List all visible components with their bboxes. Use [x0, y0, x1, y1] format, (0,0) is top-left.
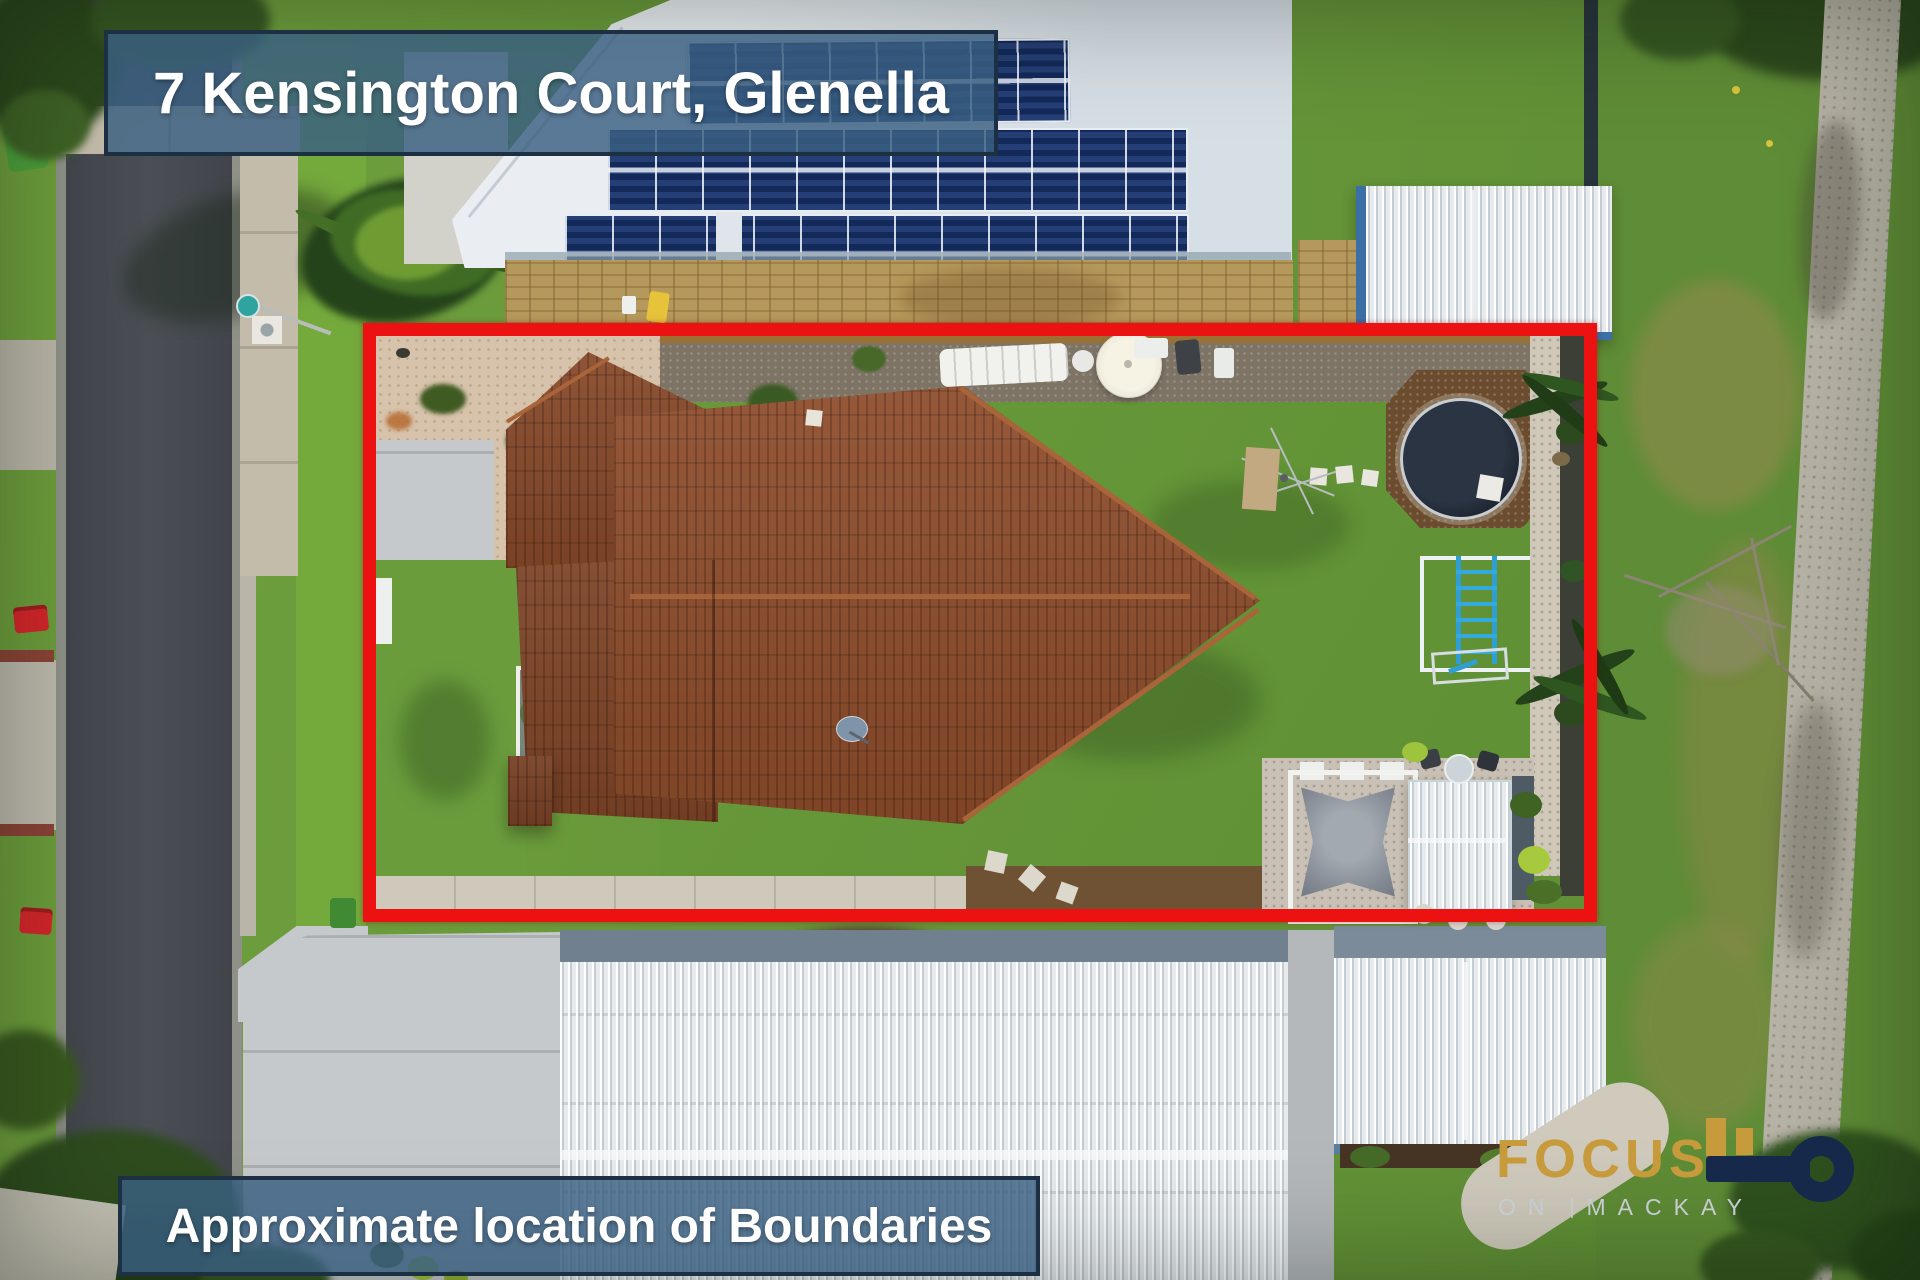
address-text: 7 Kensington Court, Glenella	[153, 60, 949, 127]
key-icon	[1706, 1118, 1726, 1156]
brick-edging	[0, 650, 54, 662]
shed-ridge	[1470, 190, 1474, 328]
logo-wordmark: FOCUS	[1496, 1128, 1710, 1190]
boundaries-text: Approximate location of Boundaries	[166, 1199, 993, 1254]
flower-dot	[1732, 86, 1740, 94]
brick-edging	[0, 824, 54, 836]
address-banner: 7 Kensington Court, Glenella	[104, 30, 998, 156]
shed-roof	[1356, 186, 1612, 340]
shrub	[1350, 1146, 1390, 1168]
courtyard-stain	[900, 268, 1120, 328]
red-wheelie-bin	[13, 604, 50, 633]
curb-strip	[240, 576, 256, 936]
worn-patch	[1630, 280, 1800, 510]
boundaries-banner: Approximate location of Boundaries	[118, 1176, 1040, 1276]
patio-strip	[1288, 930, 1334, 1280]
shed-eave-band	[1334, 926, 1606, 960]
key-icon	[1788, 1136, 1854, 1202]
boundary-outline	[363, 323, 1597, 922]
far-left-driveway	[0, 340, 56, 470]
shed-ridge	[1464, 962, 1468, 1140]
green-bin-small	[330, 898, 356, 928]
far-left-driveway	[0, 660, 56, 830]
bare-tree-crown	[1665, 585, 1775, 675]
flower-dot	[1766, 140, 1773, 147]
aerial-photo: 7 Kensington Court, Glenella Approximate…	[0, 0, 1920, 1280]
yellow-object	[646, 291, 670, 323]
street-road	[56, 0, 242, 1280]
logo-tagline-mackay: MACKAY	[1587, 1194, 1754, 1221]
tree-canopy	[0, 90, 90, 160]
bottom-house-eave-band	[560, 930, 1290, 964]
white-object	[622, 296, 636, 314]
logo-tagline: ON MACKAY	[1498, 1194, 1754, 1221]
street-light	[236, 294, 260, 318]
brick-pad	[1298, 240, 1356, 336]
bottom-roof-ridge	[560, 1150, 1290, 1160]
street-sign	[252, 316, 282, 344]
key-icon	[1736, 1128, 1753, 1155]
red-wheelie-bin	[19, 907, 53, 935]
logo-tagline-divider	[1571, 1198, 1573, 1218]
agency-logo: FOCUS ON MACKAY	[1488, 1100, 1908, 1230]
logo-tagline-on: ON	[1498, 1194, 1557, 1221]
gutter-line	[505, 252, 1291, 260]
